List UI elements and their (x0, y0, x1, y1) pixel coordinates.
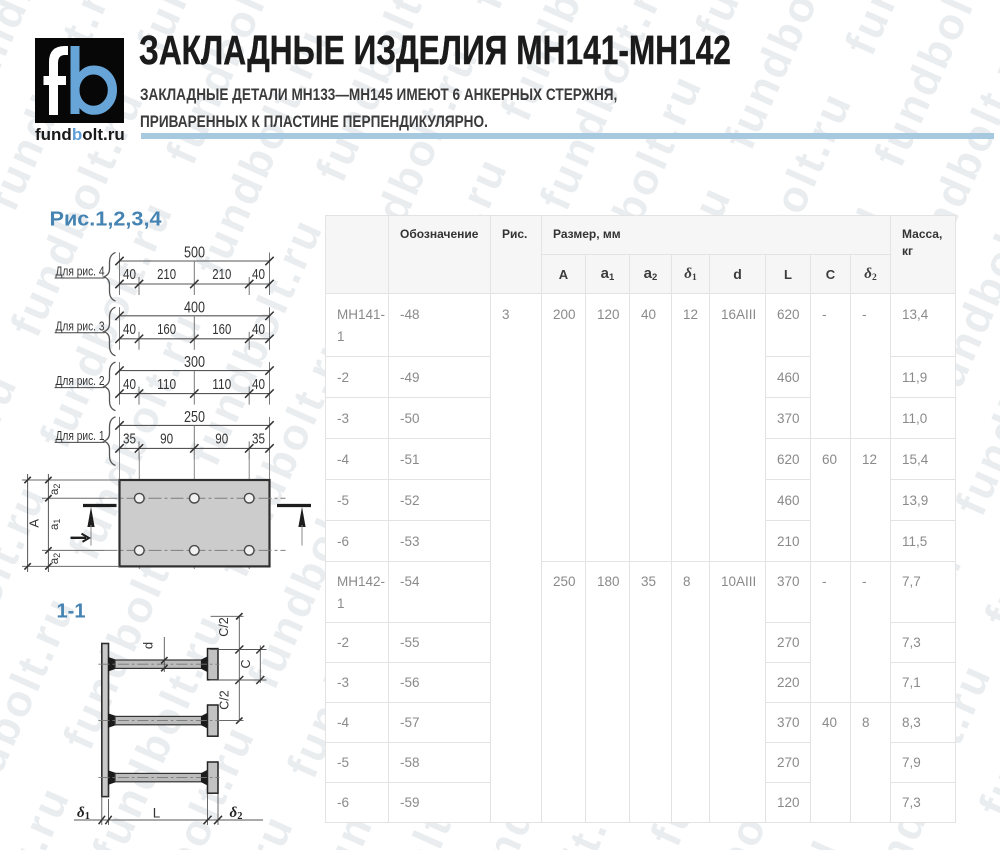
svg-text:Для рис. 1: Для рис. 1 (56, 429, 105, 443)
svg-text:Для рис. 2: Для рис. 2 (56, 374, 105, 388)
svg-text:40: 40 (252, 376, 265, 393)
svg-text:δ2: δ2 (230, 805, 243, 822)
svg-text:40: 40 (252, 266, 265, 283)
svg-text:35: 35 (123, 431, 136, 448)
svg-text:210: 210 (157, 266, 176, 283)
svg-text:A: A (27, 519, 42, 528)
svg-text:500: 500 (184, 245, 205, 262)
svg-text:Для рис. 3: Для рис. 3 (56, 319, 105, 333)
svg-text:L: L (153, 806, 161, 821)
svg-text:400: 400 (184, 299, 205, 316)
svg-text:d: d (140, 642, 155, 649)
svg-text:C/2: C/2 (217, 617, 231, 637)
svg-text:250: 250 (184, 409, 205, 426)
svg-text:a1: a1 (49, 519, 62, 530)
svg-text:160: 160 (212, 321, 231, 338)
svg-text:90: 90 (160, 431, 173, 448)
svg-text:Для рис. 4: Для рис. 4 (56, 265, 105, 279)
svg-text:C: C (239, 659, 253, 668)
svg-text:35: 35 (252, 431, 265, 448)
svg-text:90: 90 (215, 431, 228, 448)
svg-text:40: 40 (123, 321, 136, 338)
svg-text:110: 110 (157, 376, 176, 393)
svg-text:a2: a2 (49, 484, 62, 495)
svg-text:110: 110 (212, 376, 231, 393)
svg-text:δ1: δ1 (77, 805, 90, 822)
svg-text:40: 40 (123, 376, 136, 393)
svg-text:300: 300 (184, 354, 205, 371)
svg-text:C/2: C/2 (218, 690, 232, 710)
svg-text:210: 210 (212, 266, 231, 283)
svg-text:160: 160 (157, 321, 176, 338)
svg-text:40: 40 (123, 266, 136, 283)
svg-text:Рис.1,2,3,4: Рис.1,2,3,4 (50, 209, 163, 231)
svg-text:1-1: 1-1 (57, 601, 86, 623)
svg-text:40: 40 (252, 321, 265, 338)
svg-text:a2: a2 (49, 553, 62, 564)
